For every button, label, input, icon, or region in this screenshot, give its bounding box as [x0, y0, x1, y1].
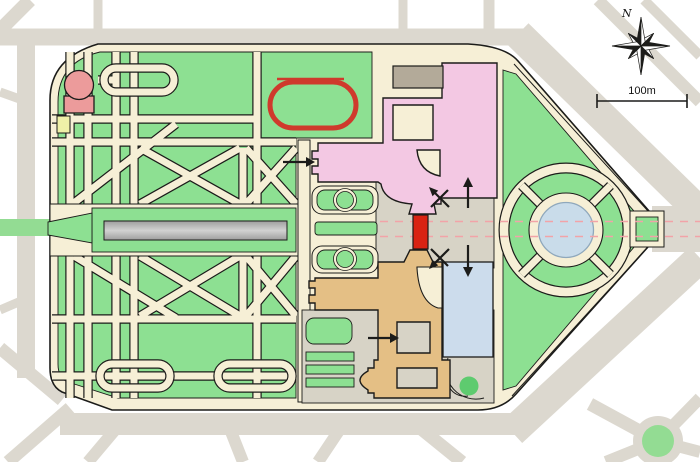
rotunda-building [64, 71, 94, 114]
canal [104, 221, 287, 240]
avenue-green-median [0, 219, 55, 236]
gray-roof-building [393, 66, 443, 88]
parterre-gardens [312, 186, 378, 273]
roundabout-green-island [642, 425, 674, 457]
hedge-strip [306, 378, 354, 387]
hedge-block [306, 318, 352, 344]
hedge-strip [306, 352, 354, 361]
small-yellow-structure [57, 116, 70, 133]
hedge-strip [306, 365, 354, 374]
point-square-lawn [636, 217, 658, 241]
canal-parcel [48, 204, 300, 256]
scale-bar-label: 100m [628, 85, 656, 97]
compass-north-label: N [621, 7, 632, 20]
red-gate [413, 215, 428, 249]
plain-parterre [315, 222, 377, 235]
round-pond [539, 203, 594, 258]
site-plan-map: N 100m [0, 0, 700, 462]
map-stage: N 100m [0, 0, 700, 462]
tree-circle [460, 377, 479, 396]
